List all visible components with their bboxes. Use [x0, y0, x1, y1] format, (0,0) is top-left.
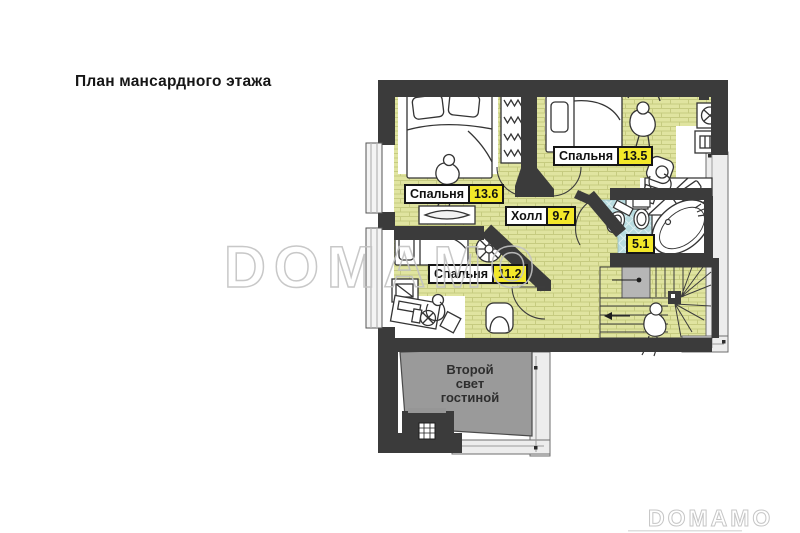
room-area: 13.5 — [619, 146, 653, 166]
room-label-bedroom-13-5: Спальня13.5 — [553, 146, 653, 166]
wall-right-top — [711, 97, 728, 155]
wall-right-stairs — [712, 258, 719, 338]
room-label-bedroom-11-2: Спальня11.2 — [428, 264, 528, 284]
window-left-1 — [366, 143, 382, 213]
room-name: Холл — [505, 206, 548, 226]
person-head — [656, 166, 668, 178]
pillow — [412, 94, 444, 119]
wall-top — [378, 80, 728, 97]
armchair — [486, 303, 513, 333]
room-area: 9.7 — [548, 206, 575, 226]
room-area: 5.1 — [626, 234, 655, 254]
wall-bath-bottom — [610, 253, 712, 267]
chimney-flue — [419, 423, 435, 439]
page-title: План мансардного этажа — [75, 73, 272, 91]
wall-door-jamb — [537, 280, 551, 291]
void-label-line: Второй — [427, 363, 513, 377]
wall-left-1 — [378, 80, 395, 145]
room-name: Спальня — [404, 184, 470, 204]
wall-bottom — [378, 338, 712, 352]
void-label: Второй свет гостиной — [427, 363, 513, 405]
room-label-bedroom-13-6: Спальня13.6 — [404, 184, 504, 204]
windows — [366, 143, 382, 328]
stair-landing — [622, 267, 650, 298]
void-label-line: свет — [427, 377, 513, 391]
void-label-line: гостиной — [427, 391, 513, 405]
pillow — [551, 102, 568, 132]
wall-bedrooms-top — [521, 92, 537, 168]
room-area: 13.6 — [470, 184, 504, 204]
room-name: Спальня — [553, 146, 619, 166]
toilet-2 — [633, 199, 650, 229]
room-label-bathroom: 5.1 — [626, 234, 655, 254]
room-area: 11.2 — [494, 264, 528, 284]
room-label-hall: Холл9.7 — [505, 206, 576, 226]
wall-bath-top — [610, 188, 712, 200]
wall-right-bath — [704, 196, 713, 258]
room-name: Спальня — [428, 264, 494, 284]
window-left-2 — [366, 228, 382, 328]
wall-bedrooms-left — [394, 226, 484, 240]
floor-plan-page: План мансардного этажа Спальня13.6 Спаль… — [0, 0, 800, 533]
wall-left-2 — [378, 212, 395, 230]
